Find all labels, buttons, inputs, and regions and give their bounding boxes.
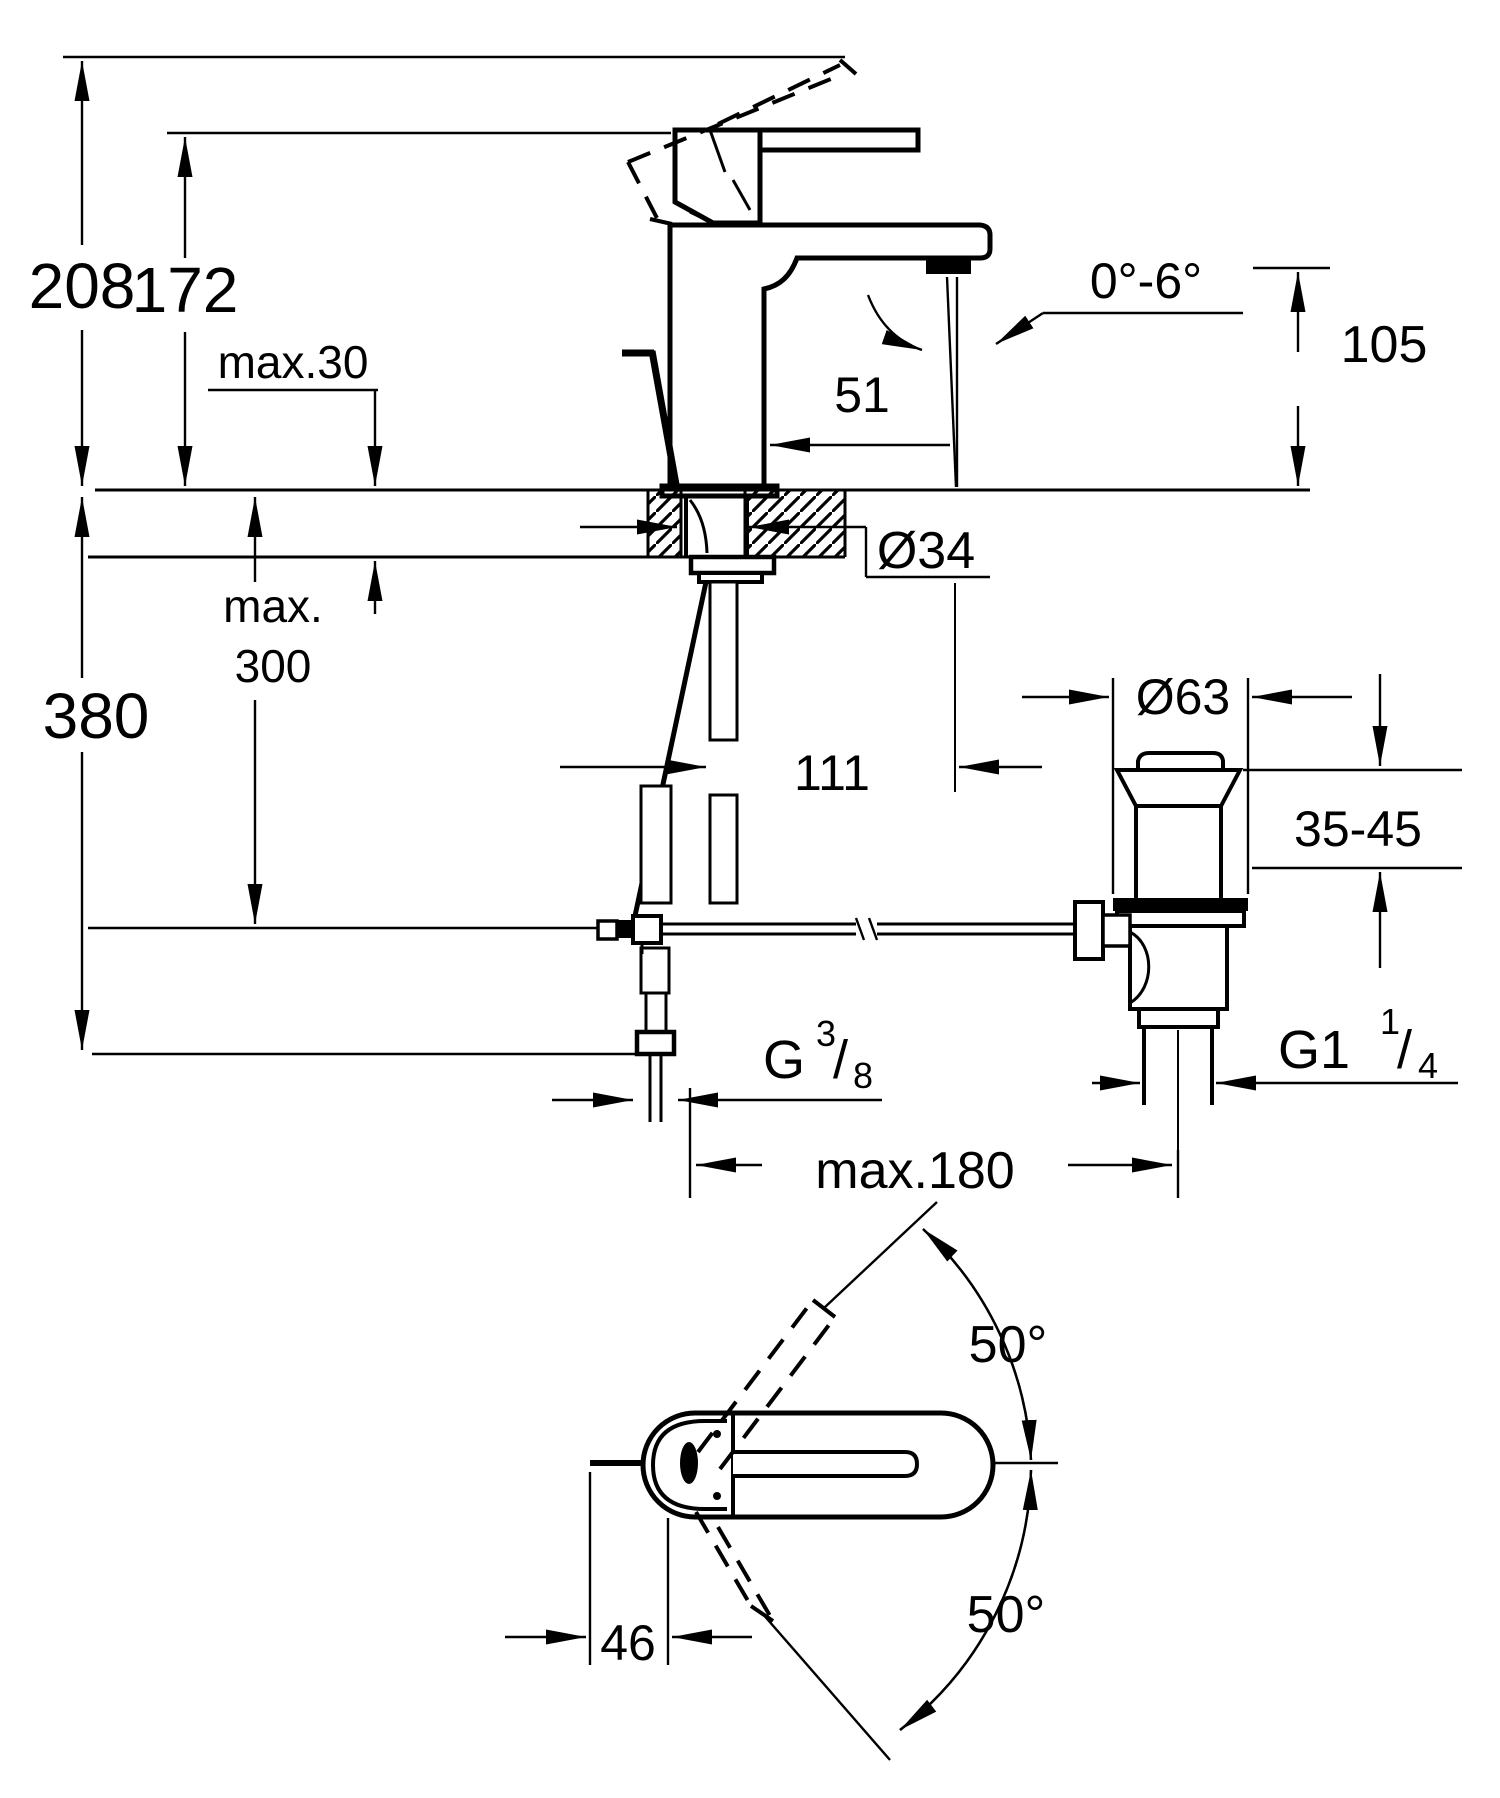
plan-view: 50° 50° 46: [505, 1202, 1058, 1760]
dim-max30-label: max.30: [218, 336, 369, 388]
dim-dia34-label: Ø34: [877, 522, 975, 580]
dim-111-label: 111: [794, 745, 870, 801]
linkage-rod: [88, 918, 1077, 940]
faucet-dimension-drawing: 208 172 max.30 51 0°-6° 105: [0, 0, 1500, 1798]
aerator: [926, 258, 971, 274]
angle-upper-50-label: 50°: [969, 1316, 1048, 1374]
dim-51-label: 51: [834, 367, 890, 423]
dim-g38-label: G3/8: [763, 1013, 873, 1096]
handle-raised-tip-cap: [840, 60, 856, 74]
dim-380-label: 380: [43, 680, 150, 752]
countertop: [88, 490, 1310, 557]
plan-dot-bottom: [713, 1492, 721, 1500]
dim-46-label: 46: [600, 1615, 656, 1671]
dim-172-label: 172: [132, 254, 239, 326]
dim-max300-value: 300: [235, 640, 312, 692]
dim-g114-label: G11/4: [1278, 1001, 1438, 1086]
dim-dia63-label: Ø63: [1136, 669, 1231, 725]
plan-dot-top: [713, 1430, 721, 1438]
angle-lower-50-label: 50°: [967, 1586, 1046, 1644]
water-stream-line: [947, 277, 956, 487]
dim-max300-word: max.: [223, 580, 323, 632]
supply-hose-right: [710, 582, 737, 903]
technical-drawing-page: 208 172 max.30 51 0°-6° 105: [0, 0, 1500, 1798]
handle-cartridge: [675, 130, 760, 223]
waste-knob: [1075, 902, 1103, 959]
dim-105-label: 105: [1341, 316, 1428, 374]
dim-max180-label: max.180: [815, 1142, 1014, 1200]
handle-lever: [760, 130, 918, 150]
dim-angle-range-label: 0°-6°: [1090, 253, 1202, 309]
plan-spout-hole: [680, 1442, 698, 1484]
waste-seat: [1117, 770, 1240, 806]
dim-3545-label: 35-45: [1294, 801, 1422, 857]
front-view: 208 172 max.30 51 0°-6° 105: [29, 57, 1462, 1200]
g38-nut: [637, 1032, 674, 1054]
dim-208-label: 208: [29, 250, 136, 322]
plan-handle-slot: [733, 1452, 917, 1476]
pop-up-waste: [1075, 753, 1248, 1197]
waste-collar: [1139, 1009, 1218, 1027]
waste-flange: [1117, 911, 1244, 926]
waste-knob-stem: [1103, 915, 1130, 946]
waste-plug-cap: [1138, 753, 1223, 770]
waste-valve-body: [1130, 926, 1227, 1009]
